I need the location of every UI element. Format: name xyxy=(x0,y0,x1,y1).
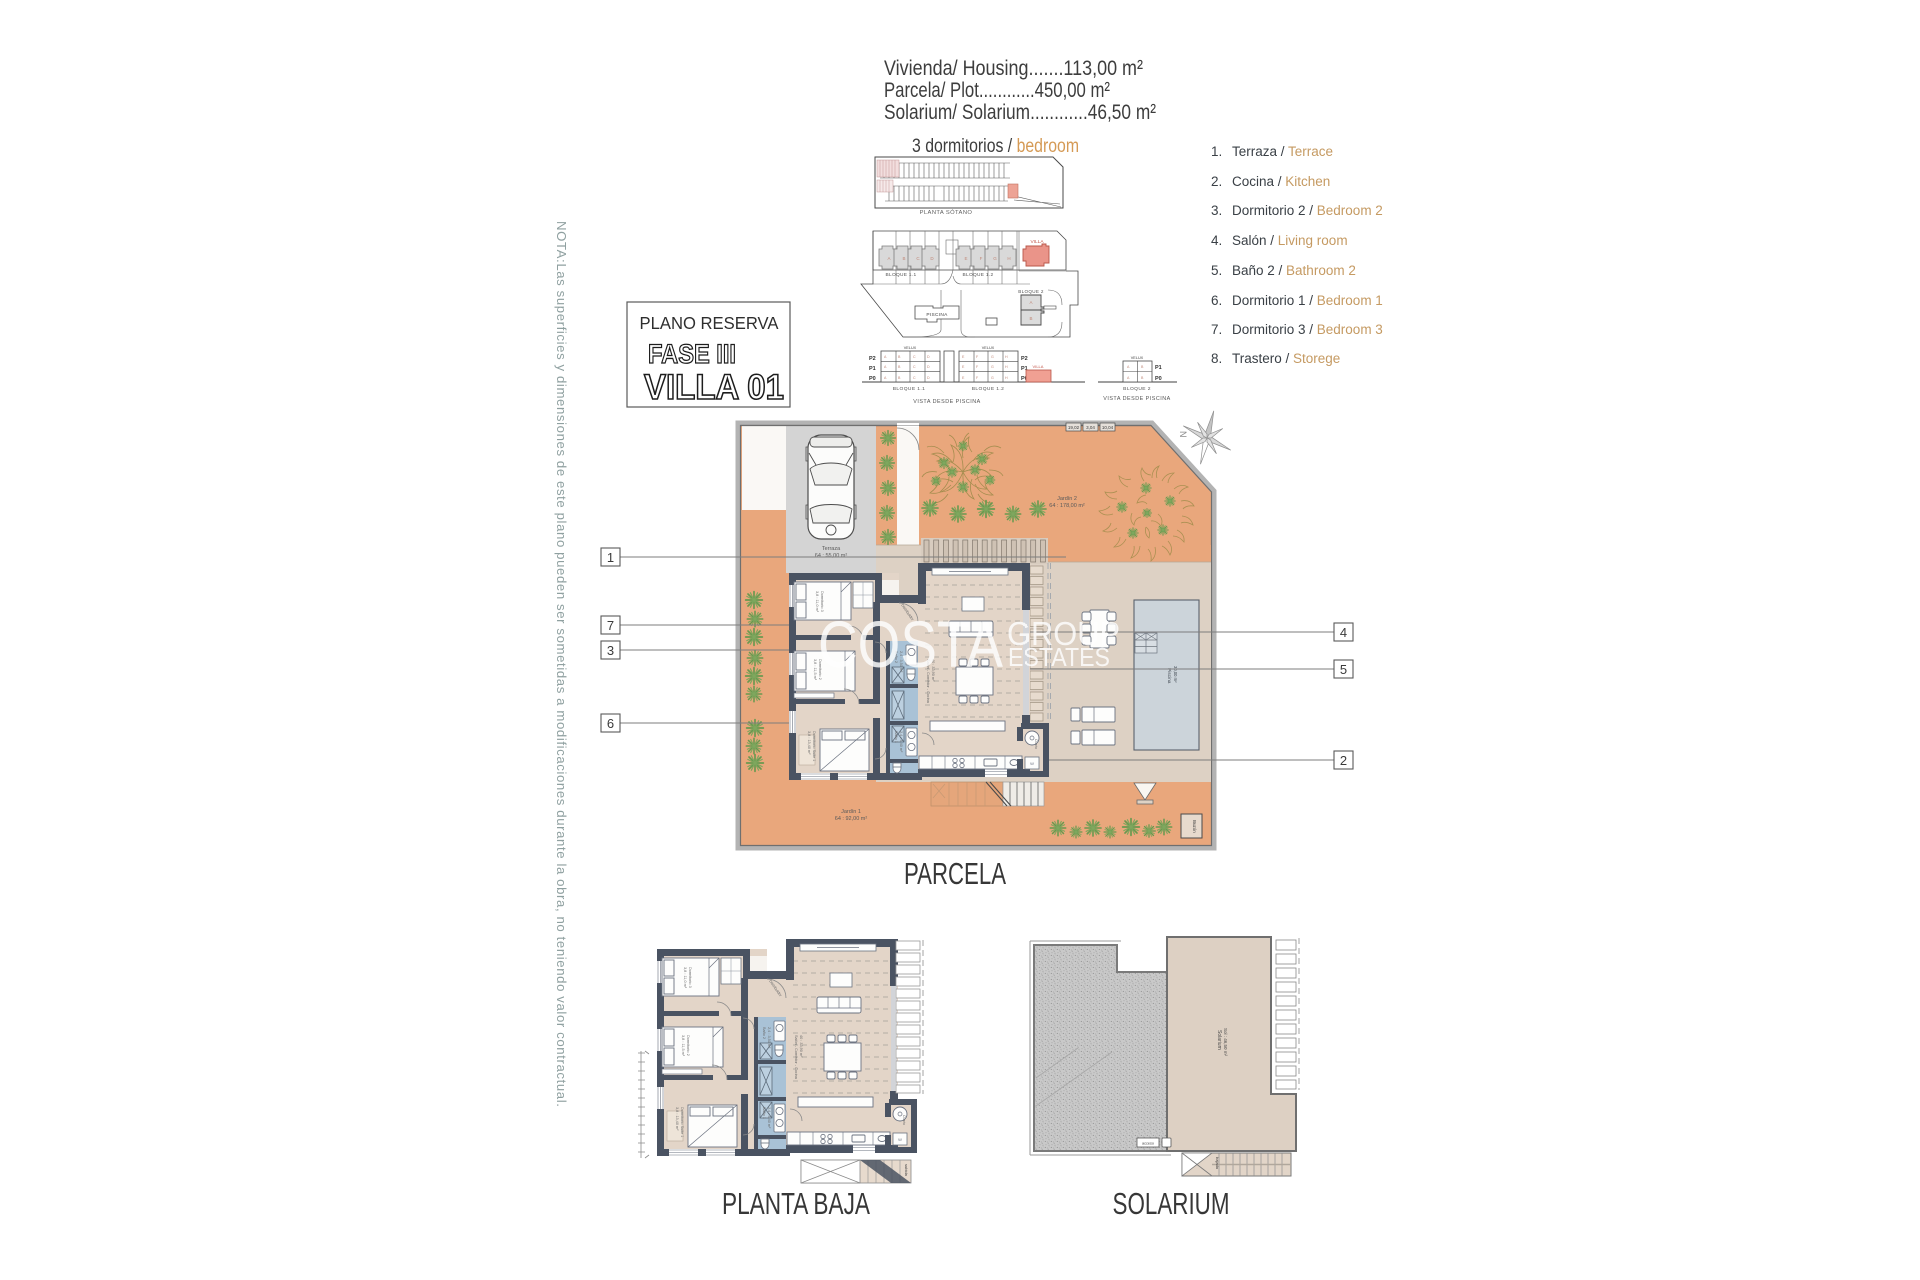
svg-text:P0: P0 xyxy=(869,376,876,382)
svg-text:NOTA:Las superficies y dimensi: NOTA:Las superficies y dimensiones de es… xyxy=(554,221,569,1108)
svg-text:VISTA DESDE PISCINA: VISTA DESDE PISCINA xyxy=(1103,396,1171,402)
svg-text:H: H xyxy=(1005,355,1008,359)
svg-text:2: 2 xyxy=(1340,753,1347,768)
svg-text:4: 4 xyxy=(1340,625,1347,640)
svg-text:Dormitorio 2 / Bedroom 2: Dormitorio 2 / Bedroom 2 xyxy=(1232,203,1383,218)
svg-text:3.: 3. xyxy=(1211,203,1222,218)
svg-text:Terraza / Terrace: Terraza / Terrace xyxy=(1232,144,1333,159)
svg-text:4.: 4. xyxy=(1211,233,1222,248)
svg-text:PLANO RESERVA: PLANO RESERVA xyxy=(640,313,779,333)
svg-text:B: B xyxy=(902,256,905,261)
svg-text:B: B xyxy=(1029,316,1032,321)
svg-text:PARCELA: PARCELA xyxy=(904,856,1006,891)
svg-text:PLANTA BAJA: PLANTA BAJA xyxy=(722,1186,870,1221)
svg-text:BLOQUE 1.1: BLOQUE 1.1 xyxy=(893,386,926,392)
svg-text:7: 7 xyxy=(607,618,614,633)
svg-text:COSTA: COSTA xyxy=(818,607,1003,681)
svg-text:64 : 92,00 m²: 64 : 92,00 m² xyxy=(835,816,868,822)
svg-text:VILLA: VILLA xyxy=(1033,364,1044,369)
svg-text:P2: P2 xyxy=(869,356,876,362)
svg-text:Terraza: Terraza xyxy=(822,546,841,552)
svg-text:Baño 2 / Bathroom 2: Baño 2 / Bathroom 2 xyxy=(1232,263,1356,278)
svg-text:H: H xyxy=(1007,256,1010,261)
svg-text:3,04: 3,04 xyxy=(1086,425,1095,430)
svg-text:VELUX: VELUX xyxy=(1131,356,1144,360)
svg-text:Jardín 2: Jardín 2 xyxy=(1057,496,1077,502)
svg-text:7.: 7. xyxy=(1211,322,1222,337)
svg-text:G: G xyxy=(991,355,994,359)
svg-text:5.: 5. xyxy=(1211,263,1222,278)
svg-text:VELUX: VELUX xyxy=(904,346,917,350)
svg-text:3 dormitorios / bedroom: 3 dormitorios / bedroom xyxy=(912,135,1079,157)
svg-text:A: A xyxy=(1029,300,1032,305)
svg-text:G: G xyxy=(993,256,997,261)
svg-text:Dormitorio 3 / Bedroom 3: Dormitorio 3 / Bedroom 3 xyxy=(1232,322,1383,337)
svg-text:64 : 178,00 m²: 64 : 178,00 m² xyxy=(1049,503,1085,509)
svg-text:FASE III: FASE III xyxy=(648,339,736,369)
svg-text:F: F xyxy=(980,256,983,261)
svg-text:P0: P0 xyxy=(1155,376,1162,382)
svg-text:H: H xyxy=(1005,376,1008,380)
svg-text:8.: 8. xyxy=(1211,351,1222,366)
svg-text:P2: P2 xyxy=(1021,356,1028,362)
svg-text:Trastero / Storege: Trastero / Storege xyxy=(1232,351,1340,366)
svg-text:D: D xyxy=(927,355,930,359)
svg-text:BLOQUE 2: BLOQUE 2 xyxy=(1018,289,1044,294)
svg-text:D: D xyxy=(927,365,930,369)
svg-text:bajada: bajada xyxy=(1215,1157,1220,1170)
svg-text:Salón / Living room: Salón / Living room xyxy=(1232,233,1348,248)
svg-text:3: 3 xyxy=(607,643,614,658)
svg-text:P1: P1 xyxy=(1155,365,1162,371)
svg-text:P1: P1 xyxy=(869,366,876,372)
svg-text:19,02: 19,02 xyxy=(1068,425,1080,430)
svg-text:acceso: acceso xyxy=(1142,1142,1154,1146)
svg-text:1.: 1. xyxy=(1211,144,1222,159)
svg-text:C: C xyxy=(913,355,916,359)
svg-text:1: 1 xyxy=(607,550,614,565)
svg-text:6: 6 xyxy=(607,716,614,731)
svg-text:BLOQUE 1.2: BLOQUE 1.2 xyxy=(963,272,994,278)
svg-text:VILLA 01: VILLA 01 xyxy=(644,368,784,407)
svg-text:Cocina / Kitchen: Cocina / Kitchen xyxy=(1232,174,1330,189)
svg-text:A: A xyxy=(887,256,890,261)
svg-text:C: C xyxy=(913,376,916,380)
svg-text:VILLA: VILLA xyxy=(1030,239,1044,245)
svg-text:E: E xyxy=(964,256,967,261)
svg-text:PLANTA SÓTANO: PLANTA SÓTANO xyxy=(920,209,973,216)
svg-text:6.: 6. xyxy=(1211,293,1222,308)
svg-text:H: H xyxy=(1005,365,1008,369)
svg-text:BLOQUE 1.2: BLOQUE 1.2 xyxy=(972,386,1005,392)
svg-text:D: D xyxy=(927,376,930,380)
svg-text:G: G xyxy=(991,376,994,380)
svg-text:VISTA DESDE PISCINA: VISTA DESDE PISCINA xyxy=(913,399,981,405)
svg-text:C: C xyxy=(913,365,916,369)
svg-text:5: 5 xyxy=(1340,662,1347,677)
svg-text:Piscina: Piscina xyxy=(1166,668,1172,684)
svg-text:Jardín 1: Jardín 1 xyxy=(841,809,861,815)
svg-text:Buzón: Buzón xyxy=(1192,820,1197,833)
svg-text:G: G xyxy=(991,365,994,369)
svg-text:ESTATES: ESTATES xyxy=(1008,642,1110,672)
svg-text:64 : 55,00 m²: 64 : 55,00 m² xyxy=(815,553,848,559)
svg-text:2.: 2. xyxy=(1211,174,1222,189)
svg-text:Parcela/ Plot............450,0: Parcela/ Plot............450,00 m² xyxy=(884,78,1110,102)
svg-text:N: N xyxy=(1178,431,1188,438)
svg-text:PISCINA: PISCINA xyxy=(926,312,948,318)
svg-text:Sol : 46,50 m²: Sol : 46,50 m² xyxy=(1223,1028,1228,1057)
svg-text:subida: subida xyxy=(904,1164,909,1177)
svg-text:SOLARIUM: SOLARIUM xyxy=(1113,1186,1230,1221)
svg-text:Solarium: Solarium xyxy=(1216,1030,1222,1050)
svg-text:BLOQUE 1.1: BLOQUE 1.1 xyxy=(886,272,917,278)
svg-text:10,04: 10,04 xyxy=(1102,425,1114,430)
svg-text:Vivienda/ Housing.......113,00: Vivienda/ Housing.......113,00 m² xyxy=(884,56,1143,80)
svg-text:VELUX: VELUX xyxy=(982,346,995,350)
svg-text:BLOQUE 2: BLOQUE 2 xyxy=(1123,386,1151,392)
svg-text:Solarium/ Solarium............: Solarium/ Solarium............46,50 m² xyxy=(884,100,1156,124)
svg-text:Dormitorio 1 / Bedroom 1: Dormitorio 1 / Bedroom 1 xyxy=(1232,293,1383,308)
